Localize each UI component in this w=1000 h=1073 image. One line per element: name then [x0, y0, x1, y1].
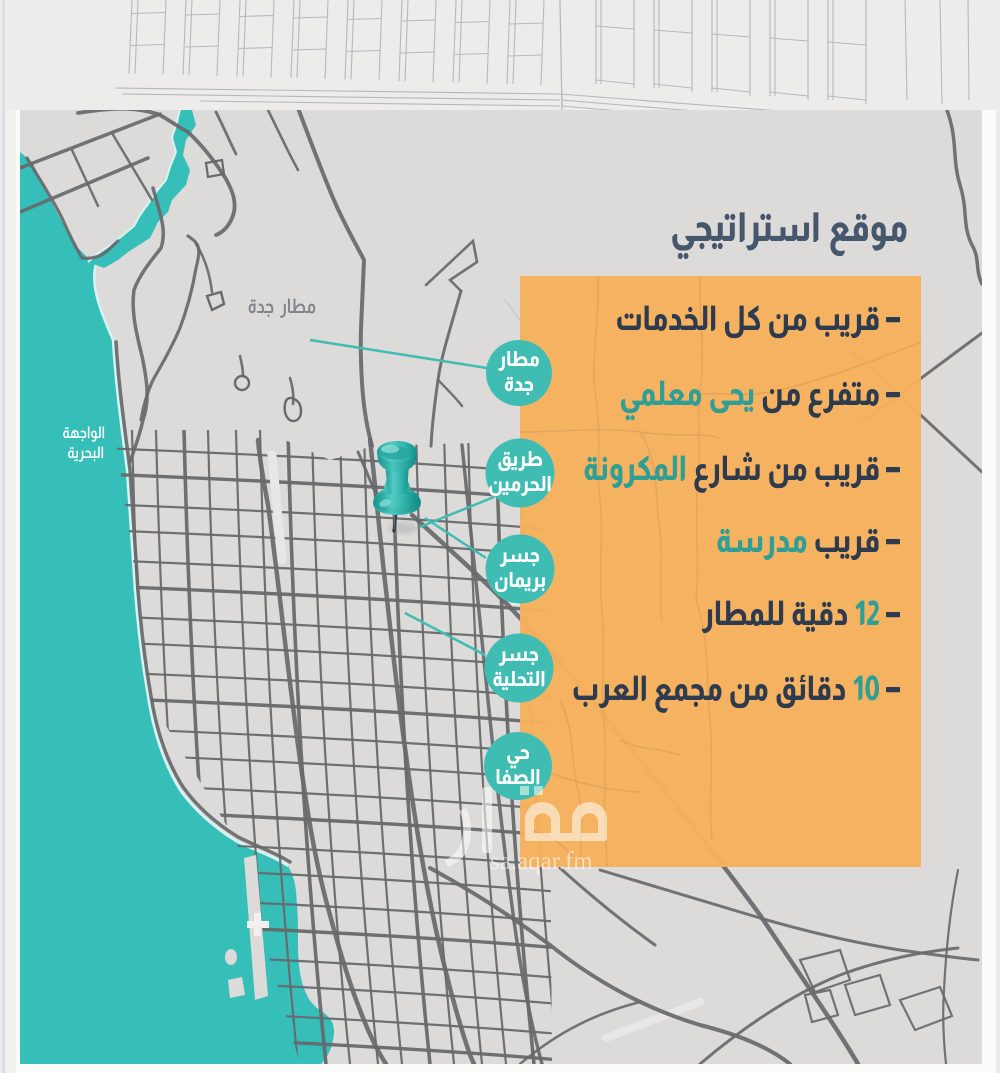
svg-text:sa.aqar.fm: sa.aqar.fm	[490, 848, 593, 875]
